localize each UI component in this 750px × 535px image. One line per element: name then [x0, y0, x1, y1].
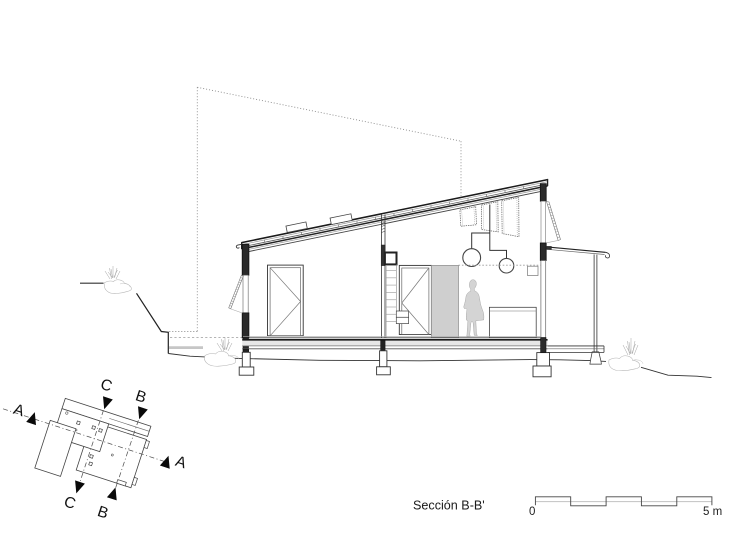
svg-text:0: 0 [529, 506, 535, 518]
svg-text:Sección B-B': Sección B-B' [413, 499, 485, 513]
svg-text:5 m: 5 m [703, 506, 722, 518]
